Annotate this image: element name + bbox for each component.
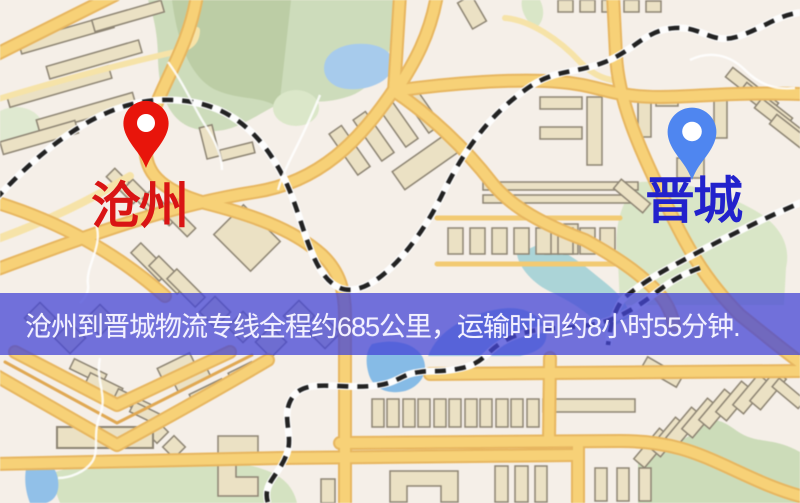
route-info-text: 沧州到晋城物流专线全程约685公里，运输时间约8小时55分钟. <box>0 305 740 344</box>
origin-pin-shape <box>123 101 168 168</box>
origin-marker-icon[interactable] <box>116 96 176 170</box>
destination-city-label: 晋城 <box>645 176 741 226</box>
destination-pin-shape <box>668 108 717 180</box>
origin-city-label: 沧州 <box>91 181 187 231</box>
map-background <box>0 0 800 503</box>
destination-pin-hole <box>682 122 702 142</box>
destination-marker-icon[interactable] <box>660 102 724 182</box>
map-canvas[interactable]: 沧州 晋城 沧州到晋城物流专线全程约685公里，运输时间约8小时55分钟. <box>0 0 800 503</box>
origin-pin-hole <box>137 114 155 132</box>
route-info-banner: 沧州到晋城物流专线全程约685公里，运输时间约8小时55分钟. <box>0 293 800 355</box>
